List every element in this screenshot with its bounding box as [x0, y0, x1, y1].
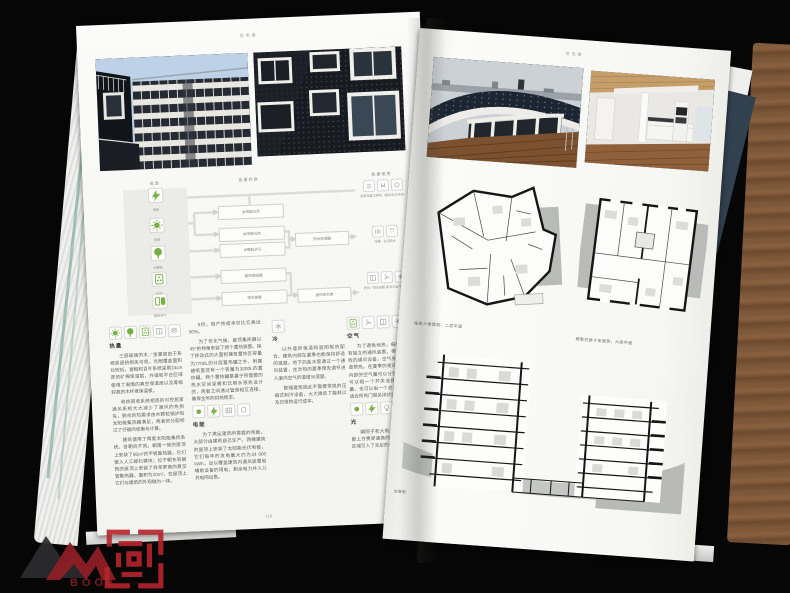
solar-roof-photo-art	[427, 57, 584, 168]
left-page-header: 住宅楼	[77, 26, 421, 46]
sun-icon	[149, 217, 165, 233]
text-column-2: 5份，但产热成本仅比它高出50%。为了优化气候，屋顶集热器以45°的倾角安装了两…	[188, 319, 267, 485]
floor-plan-2-caption: 穆勒巴赫大街建筑，六层平面	[575, 336, 632, 346]
kitchen-interior-photo	[585, 71, 715, 172]
section-icon-row	[271, 317, 343, 333]
courtyard-facade-photo	[95, 53, 252, 171]
section-drawing-caption: 剖面图	[394, 489, 406, 495]
red-maze-seal-art	[100, 526, 168, 592]
left-page: 住宅楼	[76, 12, 441, 536]
red-maze-seal	[100, 526, 168, 592]
plug-icon	[377, 179, 389, 191]
building-section-art	[399, 342, 693, 530]
fan-icon	[361, 316, 375, 330]
energy-source-label: 废弃空气	[148, 312, 172, 318]
converter-box-2: 太阳能光热	[219, 225, 286, 242]
pellet-icon	[138, 325, 151, 339]
body-paragraph: 三层玻璃的木／金属窗由于系统原因热损失可观，光照覆盖面积比较低，窗框和百叶系统采…	[110, 350, 184, 396]
body-paragraph: 以外墙的保温和遮阳板的配合，建筑内部在夏季也能保持舒适的温度。地下的盐水管通过一…	[273, 343, 346, 382]
floor-plan-2-art	[575, 190, 710, 329]
body-paragraph: 整幢建筑因此不需要常规的压缩式制冷设备，大大降低了能耗以及日常的运行成本。	[274, 382, 347, 406]
lightning-icon	[147, 188, 163, 204]
body-paragraph: 建筑使用了两套太阳能集热系统，各朝向不同。朝南一侧的屋顶上安装了95m²的平板集…	[113, 434, 187, 487]
dot-icon	[192, 405, 206, 419]
converter-box-4: 废热回收器	[220, 267, 287, 284]
energy-source-2: 太阳	[144, 217, 169, 240]
converter-box-5: 排风装置	[221, 289, 288, 306]
body-paragraph: 为了满足建筑所需要的电能，大部分由建筑自己生产。两幢建筑的屋顶上安装了太阳能光伏…	[193, 429, 267, 482]
floor-plan-1-caption: 临街大楼建筑，二层平面	[414, 320, 463, 330]
window-icon	[153, 325, 166, 339]
circle-icon	[237, 403, 251, 417]
sun-icon	[109, 326, 122, 340]
section-title: 电能	[193, 419, 265, 430]
courtyard-photo-art	[95, 53, 252, 171]
window-icon	[376, 315, 390, 329]
lightning-icon	[365, 402, 379, 416]
text-column-3: 冷以外墙的保温和遮阳板的配合，建筑内部在夏季也能保持舒适的温度。地下的盐水管通过…	[271, 315, 347, 409]
converter-box-1: 太阳能光伏	[218, 203, 285, 220]
dot-icon	[350, 402, 364, 416]
circle-icon	[391, 178, 403, 190]
radiator-icon	[372, 225, 384, 237]
tree-icon	[150, 245, 166, 261]
kitchen-photo-art	[585, 71, 715, 172]
section-title: 冷	[272, 333, 344, 344]
grid-icon	[363, 180, 375, 192]
energy-source-label: 木颗粒	[146, 264, 170, 270]
shower-icon	[386, 225, 398, 237]
usage-group-1: 家用电器与照明（剩余电力并网）	[355, 176, 412, 198]
storage-box-2: 通风热交换	[297, 287, 352, 303]
fan-icon	[381, 271, 393, 283]
dark-facade-photo-art	[253, 46, 405, 156]
storage-box-1: 热水存储器	[295, 231, 350, 247]
body-paragraph: 为了优化气候，屋顶集热器以45°的倾角安装了两个蓄热装置。除了移动式的大面积建筑…	[189, 336, 264, 403]
usage-icon-row	[355, 178, 411, 192]
pv-icon	[222, 404, 236, 418]
layers-icon	[168, 324, 181, 338]
exhaust-icon	[152, 293, 168, 309]
dark-facade-photo	[253, 46, 405, 156]
energy-source-4: 地热	[146, 271, 171, 294]
energy-source-3: 木颗粒	[145, 245, 170, 268]
section-title: 热量	[109, 340, 181, 351]
lightning-icon	[207, 405, 221, 419]
energy-source-label: 太阳	[145, 236, 169, 242]
book-photo-scene: 住宅楼	[0, 0, 790, 593]
snow-icon	[271, 320, 285, 334]
pellet-icon	[346, 316, 360, 330]
text-column-1: 热量三层玻璃的木／金属窗由于系统原因热损失可观，光照覆盖面积比较低，窗框和百叶系…	[109, 322, 188, 490]
building-section-drawing	[399, 342, 693, 530]
floor-plan-2	[575, 190, 710, 329]
right-page: 住宅楼	[383, 28, 732, 561]
solar-roof-terrace-photo	[427, 57, 584, 168]
floor-plan-1	[413, 171, 573, 327]
energy-source-label: 电网	[144, 206, 168, 212]
converter-box-3: 木颗粒炉子	[219, 241, 286, 258]
body-paragraph: 和热回收系统相连的可控居室通风系统大大减少了通风的热损失，剩余的热需求由木颗粒锅…	[112, 396, 185, 435]
energy-source-5: 废弃空气	[147, 293, 172, 316]
tree-icon	[123, 326, 136, 340]
floor-plan-1-art	[413, 171, 573, 327]
body-paragraph: 5份，但产热成本仅比它高出50%。	[188, 319, 261, 336]
window-icon	[367, 272, 379, 284]
energy-flow-diagram: 能源能量转换能量使用电网太阳木颗粒地热废弃空气太阳能光伏太阳能光热木颗粒炉子废热…	[93, 170, 419, 325]
section-icon-row	[192, 403, 264, 419]
pellet-icon	[151, 271, 167, 287]
energy-source-1: 电网	[143, 187, 168, 210]
section-icon-row	[109, 324, 181, 340]
